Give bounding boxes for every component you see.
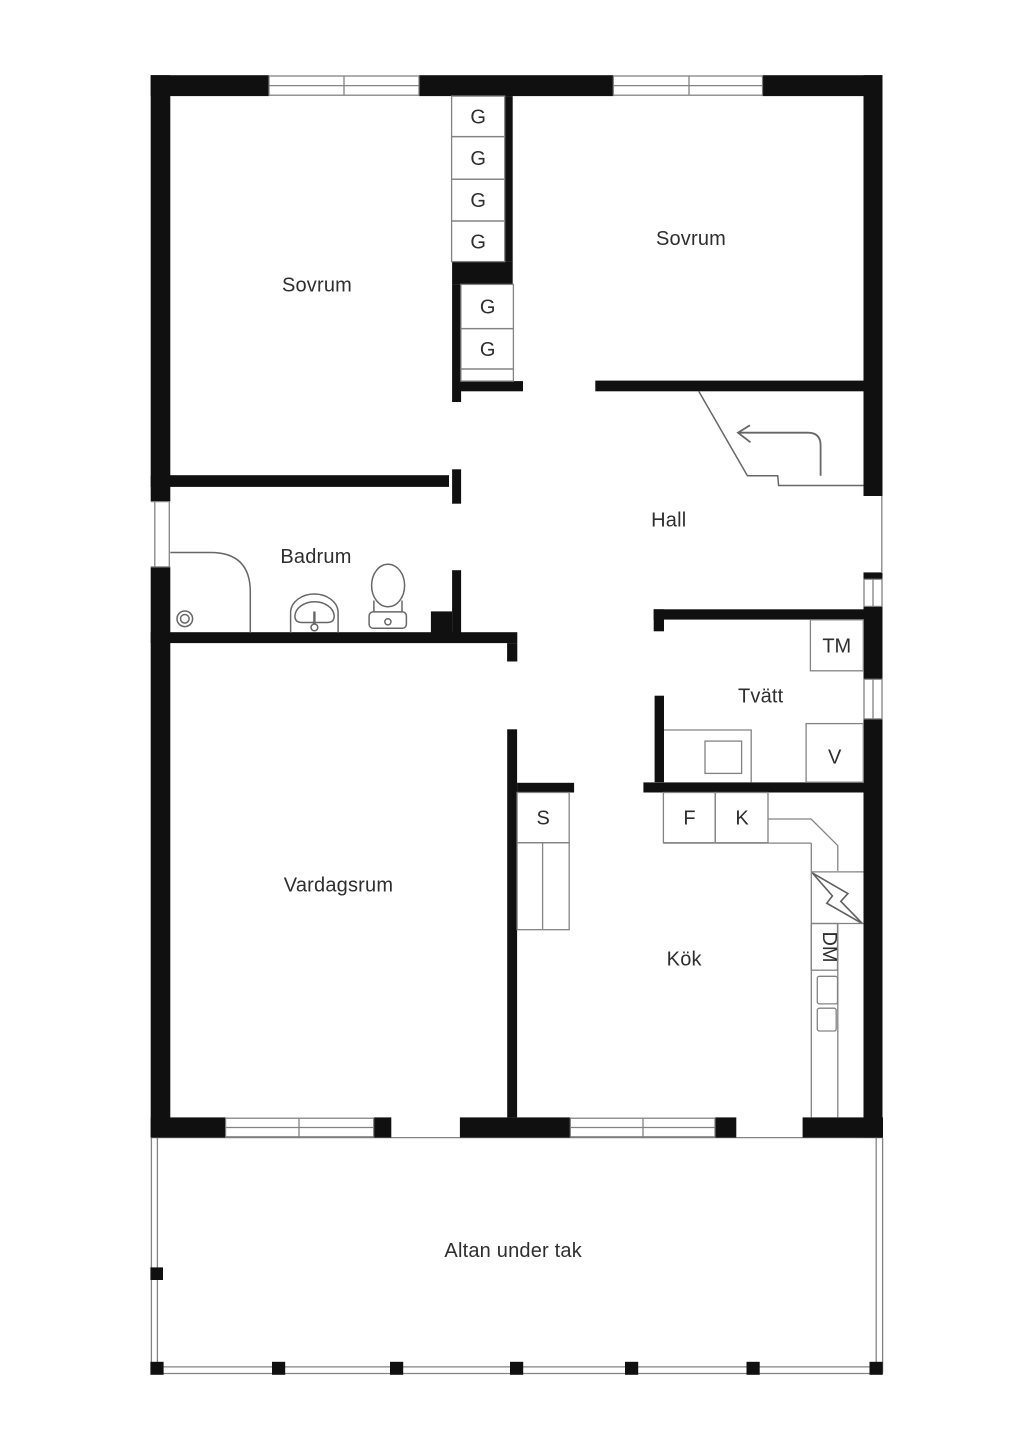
- svg-text:Kök: Kök: [667, 948, 703, 970]
- svg-text:Hall: Hall: [651, 509, 686, 531]
- svg-text:F: F: [683, 808, 695, 830]
- svg-text:G: G: [470, 190, 486, 212]
- svg-text:G: G: [480, 339, 496, 361]
- svg-text:S: S: [537, 808, 550, 830]
- svg-text:G: G: [470, 231, 486, 253]
- svg-text:G: G: [470, 148, 486, 170]
- svg-text:G: G: [470, 106, 486, 128]
- svg-text:Sovrum: Sovrum: [656, 228, 726, 250]
- svg-text:G: G: [480, 297, 496, 319]
- svg-text:Altan under tak: Altan under tak: [444, 1240, 582, 1262]
- svg-text:Badrum: Badrum: [280, 546, 351, 568]
- svg-text:V: V: [828, 747, 842, 769]
- svg-text:Tvätt: Tvätt: [738, 686, 784, 708]
- svg-text:K: K: [735, 808, 749, 830]
- svg-text:TM: TM: [822, 635, 851, 657]
- svg-text:Vardagsrum: Vardagsrum: [284, 874, 393, 896]
- svg-text:DM: DM: [818, 931, 840, 962]
- svg-text:Sovrum: Sovrum: [282, 275, 352, 297]
